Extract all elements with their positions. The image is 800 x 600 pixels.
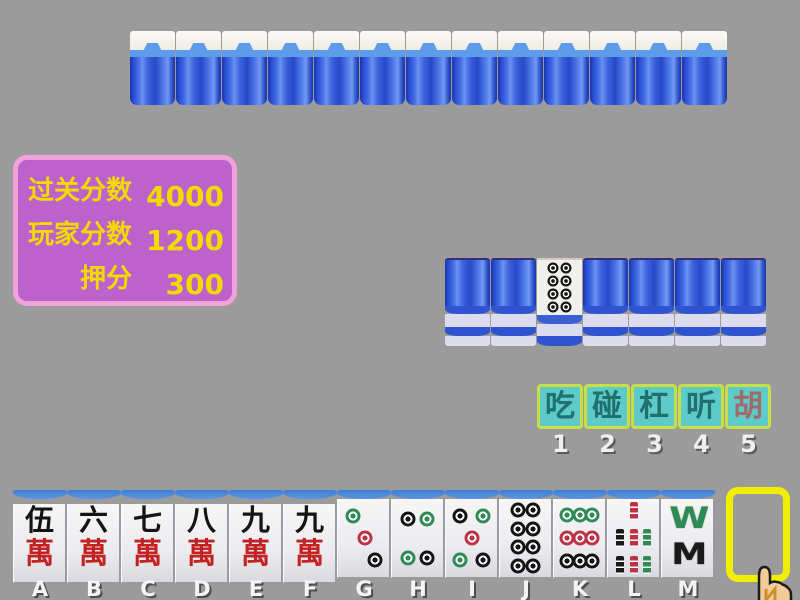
tile-stripe <box>445 327 490 336</box>
tile-face <box>445 499 499 578</box>
green-dot-pip <box>420 511 435 526</box>
tile-top-edge <box>130 31 175 50</box>
opponent-tile-back <box>176 31 221 105</box>
black-dot-pip <box>526 559 541 574</box>
tile-top-edge <box>314 31 359 50</box>
pass-score-value: 4000 <box>146 180 224 213</box>
tile-notch <box>280 43 302 50</box>
green-dot-pip <box>400 550 415 565</box>
tile-back-body <box>445 258 490 306</box>
tile-back-body <box>721 258 766 306</box>
green-dot-pip <box>585 507 600 522</box>
black-dot-pip <box>510 502 525 517</box>
tile-stripe <box>721 314 766 327</box>
hand-cursor-icon <box>746 560 796 600</box>
hotkey-number-row: 12345 <box>537 430 772 458</box>
tile-stripe <box>629 327 674 336</box>
player-score-value: 1200 <box>146 224 224 257</box>
tile-edge-stripe <box>498 50 543 57</box>
bamboo8-bottom-glyph: M <box>671 539 705 569</box>
tile-back-body <box>176 57 221 105</box>
wan-number-char: 九 <box>284 504 335 537</box>
tile-top-edge <box>175 490 229 499</box>
tile-back-body <box>491 258 536 306</box>
tile-face: 九萬 <box>283 504 337 583</box>
hotkey-label-peng: 2 <box>584 430 631 458</box>
wan-suit-char: 萬 <box>284 537 335 570</box>
hand-tile-F-9-wan[interactable]: 九萬 <box>283 490 337 578</box>
hand-tile-G-3-dot[interactable] <box>337 490 391 578</box>
hand-key-label-K: K <box>553 577 607 600</box>
tile-stripe <box>537 336 582 346</box>
tile-face <box>607 499 661 578</box>
tile-edge-stripe <box>590 50 635 57</box>
tile-stripe <box>629 336 674 346</box>
tile-stripe <box>537 324 582 336</box>
tile-notch <box>234 43 256 50</box>
bamboo8-top-glyph: W <box>669 503 707 533</box>
tile-back-body <box>498 57 543 105</box>
red-dot-pip <box>357 531 372 546</box>
tile-stripe <box>583 306 628 314</box>
hand-tile-H-4-dot[interactable] <box>391 490 445 578</box>
black-dot-pip <box>547 289 558 300</box>
tile-top-edge <box>445 490 499 499</box>
tile-top-edge <box>553 490 607 499</box>
tile-stripe <box>445 336 490 346</box>
hotkey-label-hu: 5 <box>725 430 772 458</box>
wan-number-char: 八 <box>176 504 227 537</box>
black-dot-pip <box>526 502 541 517</box>
black-dot-pip <box>510 559 525 574</box>
tile-back-body <box>314 57 359 105</box>
red-bamboo-stick <box>630 502 638 520</box>
tile-back-body <box>222 57 267 105</box>
opponent-tile-back <box>498 31 543 105</box>
black-dot-pip <box>420 550 435 565</box>
tile-back-body <box>452 57 497 105</box>
tile-back-body <box>406 57 451 105</box>
hand-key-label-L: L <box>607 577 661 600</box>
opponent-tile-back <box>360 31 405 105</box>
opponent-tile-back <box>682 31 727 105</box>
opponent-tile-back <box>590 31 635 105</box>
hand-key-label-A: A <box>13 577 67 600</box>
tile-top-edge <box>283 490 337 499</box>
tile-top-edge <box>636 31 681 50</box>
score-row-bet: 押分 300 <box>24 258 224 302</box>
tile-top-edge <box>590 31 635 50</box>
opponent-tile-back <box>544 31 589 105</box>
tile-edge-stripe <box>682 50 727 57</box>
tile-stripe <box>583 314 628 327</box>
wan-suit-char: 萬 <box>122 537 173 570</box>
tile-stripe <box>629 314 674 327</box>
wan-suit-char: 萬 <box>14 537 65 570</box>
opponent-tile-back <box>406 31 451 105</box>
tile-back-body <box>268 57 313 105</box>
tile-face <box>337 499 391 578</box>
meld-tile-back <box>583 258 628 346</box>
tile-top-edge <box>682 31 727 50</box>
action-button-hu[interactable]: 胡 <box>725 384 771 429</box>
hand-tile-K-9-dot[interactable] <box>553 490 607 578</box>
wan-number-char: 七 <box>122 504 173 537</box>
tile-notch <box>326 43 348 50</box>
hand-tile-C-7-wan[interactable]: 七萬 <box>121 490 175 578</box>
hand-key-label-E: E <box>229 577 283 600</box>
tile-back-body <box>636 57 681 105</box>
tile-face: 九萬 <box>229 504 283 583</box>
meld-tile-back <box>445 258 490 346</box>
tile-top-edge <box>661 490 715 499</box>
tile-stripe <box>629 306 674 314</box>
action-button-chi[interactable]: 吃 <box>537 384 583 429</box>
tile-notch <box>464 43 486 50</box>
wan-number-char: 伍 <box>14 504 65 537</box>
tile-notch <box>142 43 164 50</box>
bet-score-label: 押分 <box>24 258 146 295</box>
tile-edge-stripe <box>314 50 359 57</box>
hand-letter-row: ABCDEFGHIJKLM <box>13 577 715 600</box>
black-dot-pip <box>510 540 525 555</box>
pointer-hand-graphic <box>746 560 796 600</box>
black-dot-pip <box>561 262 572 273</box>
tile-edge-stripe <box>268 50 313 57</box>
red-dot-pip <box>464 531 479 546</box>
tile-top-edge <box>607 490 661 499</box>
hand-key-label-M: M <box>661 577 715 600</box>
tile-face: 六萬 <box>67 504 121 583</box>
meld-tile-row <box>445 258 767 346</box>
tile-top-edge <box>121 490 175 499</box>
hand-key-label-C: C <box>121 577 175 600</box>
tile-edge-stripe <box>452 50 497 57</box>
wan-suit-char: 萬 <box>176 537 227 570</box>
black-dot-pip <box>585 554 600 569</box>
tile-stripe <box>491 327 536 336</box>
tile-notch <box>372 43 394 50</box>
tile-top-edge <box>406 31 451 50</box>
hotkey-label-chi: 1 <box>537 430 584 458</box>
tile-edge-stripe <box>544 50 589 57</box>
tile-top-edge <box>452 31 497 50</box>
hand-tile-J-8-dot[interactable] <box>499 490 553 578</box>
meld-tile-back <box>721 258 766 346</box>
tile-stripe <box>675 314 720 327</box>
black-dot-pip <box>561 275 572 286</box>
tile-back-body <box>682 57 727 105</box>
tile-back-body <box>130 57 175 105</box>
score-panel: 过关分数 4000 玩家分数 1200 押分 300 <box>13 155 237 306</box>
tile-stripe <box>675 306 720 314</box>
tile-notch <box>694 43 716 50</box>
red-bamboo-stick <box>630 529 638 547</box>
tile-stripe <box>721 306 766 314</box>
tile-face: 八萬 <box>175 504 229 583</box>
hand-key-label-F: F <box>283 577 337 600</box>
tile-stripe <box>675 327 720 336</box>
tile-top-edge <box>176 31 221 50</box>
black-dot-pip <box>367 552 382 567</box>
hand-key-label-J: J <box>499 577 553 600</box>
tile-notch <box>418 43 440 50</box>
wan-suit-char: 萬 <box>68 537 119 570</box>
bet-score-value: 300 <box>146 268 224 301</box>
black-dot-pip <box>526 521 541 536</box>
tile-stripe <box>583 336 628 346</box>
tile-back-body <box>544 57 589 105</box>
action-button-gang[interactable]: 杠 <box>631 384 677 429</box>
tile-edge-stripe <box>360 50 405 57</box>
opponent-tile-back <box>452 31 497 105</box>
black-dot-pip <box>547 262 558 273</box>
tile-top-edge <box>337 490 391 499</box>
hand-tile-E-9-wan[interactable]: 九萬 <box>229 490 283 578</box>
tile-stripe <box>721 336 766 346</box>
tile-back-body <box>583 258 628 306</box>
tile-notch <box>510 43 532 50</box>
tile-stripe <box>583 327 628 336</box>
opponent-tile-back <box>222 31 267 105</box>
hand-tile-D-8-wan[interactable]: 八萬 <box>175 490 229 578</box>
tile-face: WM <box>661 499 715 578</box>
black-dot-pip <box>475 552 490 567</box>
tile-edge-stripe <box>176 50 221 57</box>
wan-number-char: 六 <box>68 504 119 537</box>
tile-top-edge <box>67 490 121 499</box>
tile-top-edge <box>13 490 67 499</box>
hotkey-label-ting: 4 <box>678 430 725 458</box>
score-row-pass: 过关分数 4000 <box>24 170 224 214</box>
tile-back-body <box>675 258 720 306</box>
mahjong-game-screen: 过关分数 4000 玩家分数 1200 押分 300 吃碰杠听胡 12345 伍… <box>0 0 800 600</box>
tile-notch <box>648 43 670 50</box>
tile-top-edge <box>499 490 553 499</box>
hand-tile-A-5-wan[interactable]: 伍萬 <box>13 490 67 578</box>
tile-stripe <box>491 306 536 314</box>
tile-notch <box>188 43 210 50</box>
hand-key-label-B: B <box>67 577 121 600</box>
action-button-peng[interactable]: 碰 <box>584 384 630 429</box>
tile-stripe <box>445 314 490 327</box>
hotkey-label-gang: 3 <box>631 430 678 458</box>
score-row-player: 玩家分数 1200 <box>24 214 224 258</box>
hand-tile-B-6-wan[interactable]: 六萬 <box>67 490 121 578</box>
tile-stripe <box>721 327 766 336</box>
opponent-tile-back <box>130 31 175 105</box>
black-dot-pip <box>453 509 468 524</box>
tile-top-edge <box>498 31 543 50</box>
tile-notch <box>556 43 578 50</box>
green-bamboo-stick <box>643 556 651 574</box>
green-bamboo-stick <box>643 529 651 547</box>
green-dot-pip <box>453 552 468 567</box>
tile-stripe <box>537 315 582 324</box>
pass-score-label: 过关分数 <box>24 170 146 207</box>
tile-back-body <box>629 258 674 306</box>
tile-top-edge <box>544 31 589 50</box>
black-dot-pip <box>561 302 572 313</box>
tile-stripe <box>491 336 536 346</box>
tile-top-edge <box>229 490 283 499</box>
tile-face <box>537 258 582 315</box>
tile-face <box>391 499 445 578</box>
red-dot-pip <box>585 531 600 546</box>
opponent-tile-back <box>314 31 359 105</box>
green-dot-pip <box>346 509 361 524</box>
tile-face: 七萬 <box>121 504 175 583</box>
player-hand-row: 伍萬六萬七萬八萬九萬九萬WM <box>13 490 715 578</box>
meld-tile-back <box>675 258 720 346</box>
hand-key-label-H: H <box>391 577 445 600</box>
hand-tile-I-5-dot[interactable] <box>445 490 499 578</box>
hand-tile-M-8-bamboo[interactable]: WM <box>661 490 715 578</box>
tile-top-edge <box>391 490 445 499</box>
meld-tile-back <box>629 258 674 346</box>
tile-edge-stripe <box>406 50 451 57</box>
action-button-ting[interactable]: 听 <box>678 384 724 429</box>
tile-edge-stripe <box>636 50 681 57</box>
tile-stripe <box>491 314 536 327</box>
meld-tile-back <box>491 258 536 346</box>
meld-tile-face-8-dot <box>537 258 582 346</box>
tile-back-body <box>590 57 635 105</box>
black-dot-pip <box>510 521 525 536</box>
tile-top-edge <box>360 31 405 50</box>
black-dot-pip <box>400 511 415 526</box>
opponent-tile-row <box>130 31 728 105</box>
black-dot-pip <box>547 302 558 313</box>
tile-edge-stripe <box>130 50 175 57</box>
tile-back-body <box>360 57 405 105</box>
tile-face <box>553 499 607 578</box>
tile-notch <box>602 43 624 50</box>
wan-number-char: 九 <box>230 504 281 537</box>
black-dot-pip <box>526 540 541 555</box>
wan-suit-char: 萬 <box>230 537 281 570</box>
hand-key-label-I: I <box>445 577 499 600</box>
red-bamboo-stick <box>630 556 638 574</box>
tile-top-edge <box>268 31 313 50</box>
tile-face <box>499 499 553 578</box>
black-dot-pip <box>547 275 558 286</box>
action-button-row: 吃碰杠听胡 <box>537 384 772 429</box>
opponent-tile-back <box>636 31 681 105</box>
tile-stripe <box>445 306 490 314</box>
tile-top-edge <box>222 31 267 50</box>
black-bamboo-stick <box>616 556 624 574</box>
tile-edge-stripe <box>222 50 267 57</box>
player-score-label: 玩家分数 <box>24 214 146 251</box>
hand-key-label-G: G <box>337 577 391 600</box>
tile-stripe <box>675 336 720 346</box>
green-dot-pip <box>475 509 490 524</box>
opponent-tile-back <box>268 31 313 105</box>
hand-tile-L-7-bamboo[interactable] <box>607 490 661 578</box>
tile-face: 伍萬 <box>13 504 67 583</box>
black-dot-pip <box>561 289 572 300</box>
black-bamboo-stick <box>616 529 624 547</box>
hand-key-label-D: D <box>175 577 229 600</box>
